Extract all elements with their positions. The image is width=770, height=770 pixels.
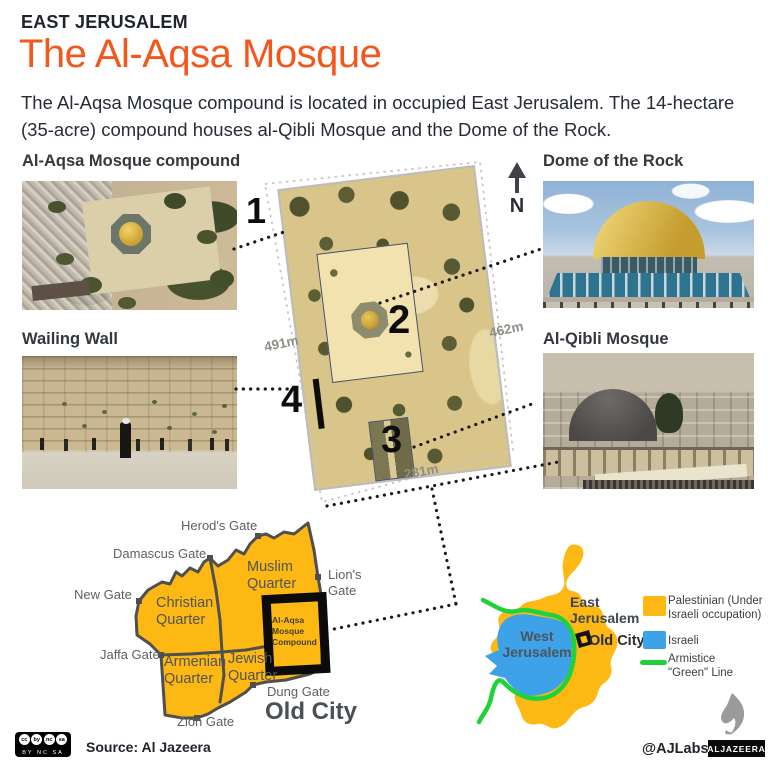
walking-figure [120,422,131,458]
cc-letters: BY NC SA [15,750,71,756]
wailing-wall-bar [313,379,325,429]
creative-commons-badge: cc by nc sa BY NC SA [15,732,71,757]
mini-label-east: East Jerusalem [570,594,630,626]
figure-cap [122,418,130,424]
caption-compound: Al-Aqsa Mosque compound [22,152,240,171]
kicker: EAST JERUSALEM [21,12,188,33]
legend-label-israeli: Israeli [668,634,699,648]
dome-drum-shape [601,257,697,273]
dimension-west: 491m [263,333,300,355]
north-arrow: N [502,162,532,218]
gate-label-lions: Lion's Gate [328,567,374,598]
quarter-label-muslim: Muslim Quarter [247,559,317,592]
gate-label-jaffa: Jaffa Gate [100,647,160,662]
photo-qibli-mosque [543,353,754,489]
leader-1 [234,232,284,249]
source-credit: Source: Al Jazeera [86,739,211,755]
aljazeera-wordmark: ALJAZEERA [708,740,765,757]
quarter-label-jewish: Jewish Quarter [228,651,292,684]
people-silhouettes [40,438,44,450]
tiled-wall-shape [547,273,750,298]
page-title: The Al-Aqsa Mosque [19,32,381,77]
photo-dome-of-rock [543,181,754,308]
north-arrow-stem [515,178,519,193]
legend-label-armistice: Armistice "Green" Line [668,652,754,681]
cc-sa-icon: sa [56,734,67,745]
gate-label-dung: Dung Gate [267,684,330,699]
cypress-shape [655,393,683,433]
mini-label-old-city: Old City [589,633,645,649]
gate-label-new: New Gate [74,587,132,602]
old-city-title: Old City [265,698,357,726]
tree-blobs [48,201,66,213]
mini-label-west: West Jerusalem [500,628,574,660]
marker-4: 4 [281,381,302,419]
intro-text: The Al-Aqsa Mosque compound is located i… [21,90,763,144]
north-arrow-head [508,162,526,178]
north-label: N [510,195,524,218]
infographic-canvas: EAST JERUSALEM The Al-Aqsa Mosque The Al… [0,0,770,770]
leader-down [432,489,456,604]
cc-by-icon: by [31,734,42,745]
legend-swatch-armistice [640,660,667,665]
photo-compound-aerial [22,181,237,310]
aljazeera-logo-icon [712,692,752,738]
crowd-strip [543,302,754,308]
compound-label-small: Al-Aqsa Mosque Compound [272,615,318,648]
plant-tufts [62,402,67,406]
caption-dome: Dome of the Rock [543,152,683,171]
gate-label-herods: Herod's Gate [181,518,257,533]
gate-label-zion: Zion Gate [177,714,234,729]
legend-swatch-israeli [643,631,666,649]
legend-label-palestinian: Palestinian (Under Israeli occupation) [668,594,768,623]
golden-dome-shape [593,201,705,259]
cc-nc-icon: nc [44,734,55,745]
caption-qibli: Al-Qibli Mosque [543,330,669,349]
crowd-strip [583,480,754,489]
marker-2: 2 [388,300,410,340]
marker-1: 1 [246,193,266,229]
gate-label-damascus: Damascus Gate [113,546,206,561]
ajlabs-handle: @AJLabs [642,741,709,757]
marker-3: 3 [381,421,402,459]
plaza-shape [81,186,220,294]
legend-swatch-palestinian [643,596,666,616]
quarter-label-christian: Christian Quarter [156,595,236,628]
caption-wailing: Wailing Wall [22,330,118,349]
lead-dome-shape [569,389,657,441]
cc-icon: cc [19,734,30,745]
golden-dome-shape [119,222,143,246]
photo-wailing-wall [22,356,237,489]
